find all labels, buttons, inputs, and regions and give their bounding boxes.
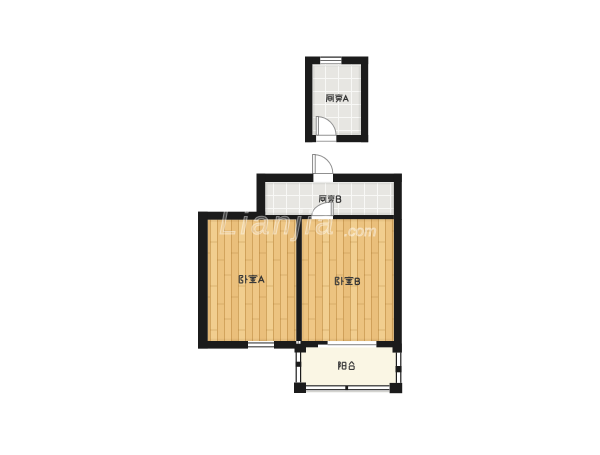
- svg-text:.com: .com: [344, 223, 377, 240]
- svg-text:Lianjia: Lianjia: [219, 204, 337, 241]
